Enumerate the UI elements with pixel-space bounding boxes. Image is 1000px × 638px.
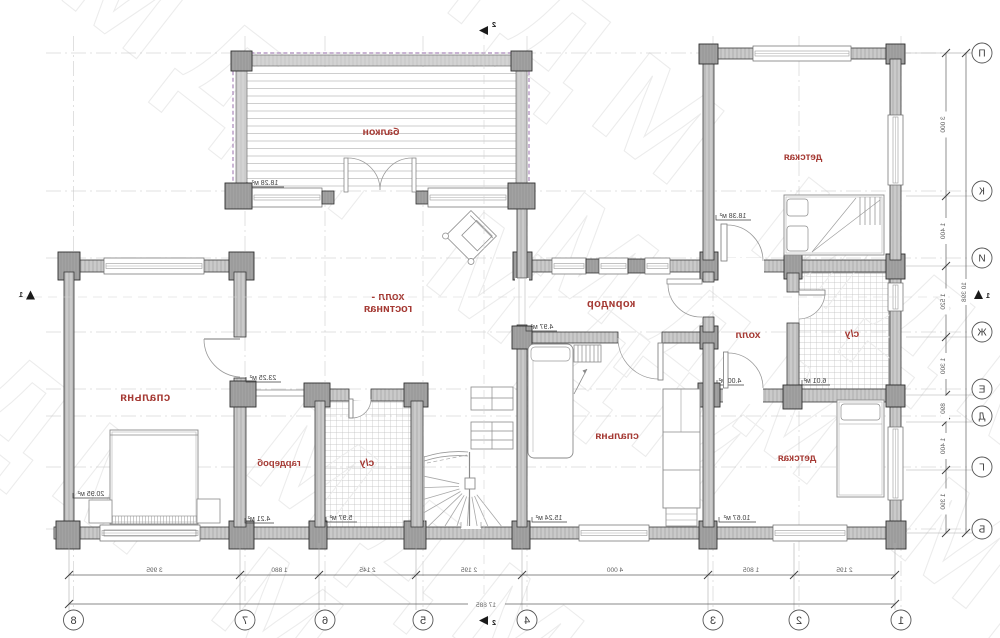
svg-text:4.97 м²: 4.97 м² (530, 324, 553, 331)
svg-text:гардероб: гардероб (257, 458, 301, 469)
svg-text:Б: Б (978, 525, 985, 536)
svg-text:К: К (979, 187, 985, 198)
svg-text:Д: Д (978, 412, 985, 423)
svg-text:детская: детская (778, 453, 817, 464)
svg-text:1 520: 1 520 (940, 293, 947, 310)
svg-text:2 145: 2 145 (359, 567, 376, 574)
svg-text:Г: Г (979, 463, 985, 474)
svg-text:5.97 м²: 5.97 м² (329, 515, 352, 522)
svg-text:1: 1 (898, 615, 904, 627)
svg-text:детская: детская (784, 152, 823, 163)
svg-text:3 995: 3 995 (146, 567, 163, 574)
svg-text:1 400: 1 400 (940, 223, 947, 240)
svg-text:20.95 м²: 20.95 м² (77, 491, 104, 498)
svg-text:1: 1 (19, 290, 23, 299)
svg-text:15.24 м²: 15.24 м² (535, 515, 562, 522)
svg-text:6.01 м²: 6.01 м² (803, 378, 826, 385)
svg-text:спальня: спальня (120, 392, 171, 404)
svg-text:4.21 м²: 4.21 м² (247, 516, 270, 523)
svg-text:2 195: 2 195 (836, 567, 853, 574)
svg-text:890: 890 (940, 403, 947, 414)
svg-text:4: 4 (524, 615, 530, 627)
svg-text:1 805: 1 805 (742, 567, 759, 574)
svg-text:Е: Е (978, 385, 985, 396)
svg-text:спальня: спальня (595, 430, 639, 442)
svg-text:И: И (978, 254, 985, 265)
svg-text:3 000: 3 000 (940, 116, 947, 133)
svg-text:балкон: балкон (363, 126, 400, 138)
svg-text:10.67 м²: 10.67 м² (723, 515, 750, 522)
svg-text:4 000: 4 000 (606, 567, 623, 574)
svg-text:П: П (978, 49, 985, 60)
svg-text:7: 7 (242, 615, 248, 627)
svg-text:с/у: с/у (845, 328, 860, 340)
svg-text:1 880: 1 880 (271, 567, 288, 574)
svg-text:1: 1 (986, 291, 990, 300)
svg-text:18.28 м²: 18.28 м² (251, 180, 278, 187)
svg-text:4.00 м²: 4.00 м² (718, 378, 741, 385)
svg-text:2: 2 (796, 615, 802, 627)
svg-text:коридор: коридор (587, 298, 636, 310)
svg-text:8: 8 (70, 615, 76, 627)
svg-text:холл: холл (735, 329, 760, 341)
svg-text:1 390: 1 390 (940, 493, 947, 510)
svg-text:1 300: 1 300 (940, 358, 947, 375)
svg-text:23.25 м²: 23.25 м² (249, 375, 276, 382)
svg-text:2: 2 (492, 620, 496, 627)
svg-text:2 195: 2 195 (460, 567, 477, 574)
svg-text:гостиная: гостиная (364, 303, 412, 315)
svg-text:2: 2 (492, 20, 496, 29)
svg-text:с/у: с/у (360, 457, 375, 469)
svg-text:Ж: Ж (977, 328, 987, 339)
svg-text:17 885: 17 885 (476, 602, 496, 609)
svg-text:10 398: 10 398 (961, 282, 968, 302)
svg-text:5: 5 (420, 615, 426, 627)
svg-text:1 400: 1 400 (940, 438, 947, 455)
svg-text:3: 3 (710, 615, 716, 627)
svg-text:18.38 м²: 18.38 м² (719, 213, 746, 220)
svg-text:6: 6 (322, 615, 328, 627)
